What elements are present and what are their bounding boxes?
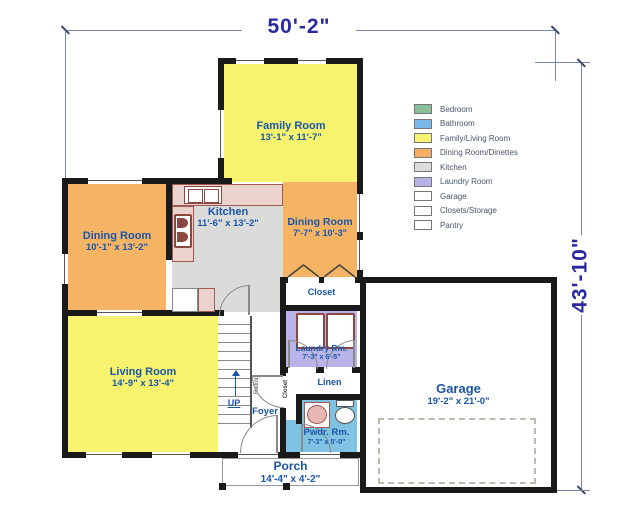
room-label-dining-left: Dining Room 10'-1" x 13'-2" bbox=[68, 230, 166, 254]
right-dimension-line bbox=[581, 315, 582, 490]
window bbox=[236, 58, 264, 64]
window bbox=[218, 110, 224, 158]
legend: Bedroom Bathroom Family/Living Room Dini… bbox=[414, 104, 518, 230]
wall bbox=[360, 487, 557, 493]
legend-item: Garage bbox=[414, 191, 518, 201]
porch-name: Porch bbox=[222, 460, 359, 474]
legend-label-dining: Dining Room/Dinettes bbox=[440, 148, 518, 157]
living-room-name: Living Room bbox=[68, 366, 218, 379]
legend-swatch-closets bbox=[414, 206, 432, 216]
laundry-name: Laundry Rm. bbox=[286, 344, 357, 354]
top-dimension-label: 50'-2" bbox=[242, 15, 356, 39]
wall bbox=[280, 305, 363, 311]
family-room-dims: 13'-1" x 11'-7" bbox=[228, 133, 354, 144]
legend-label-laundry: Laundry Room bbox=[440, 177, 492, 186]
legend-item: Laundry Room bbox=[414, 177, 518, 187]
toilet-bowl bbox=[335, 407, 355, 424]
legend-label-closets: Closets/Storage bbox=[440, 206, 497, 215]
legend-item: Bedroom bbox=[414, 104, 518, 114]
legend-label-kitchen: Kitchen bbox=[440, 163, 467, 172]
dining-left-name: Dining Room bbox=[68, 230, 166, 243]
legend-swatch-pantry bbox=[414, 220, 432, 230]
room-label-family: Family Room 13'-1" x 11'-7" bbox=[228, 120, 354, 144]
bifold-door bbox=[324, 264, 355, 278]
room-label-dining-right: Dining Room 7'-7" x 10'-3" bbox=[283, 216, 357, 238]
kitchen-door-leaf bbox=[248, 285, 250, 315]
wall bbox=[551, 277, 557, 493]
kitchen-dims: 11'-6" x 13'-2" bbox=[178, 219, 278, 230]
porch-dims: 14'-4" x 4'-2" bbox=[222, 474, 359, 486]
legend-label-garage: Garage bbox=[440, 192, 467, 201]
laundry-dims: 7'-3" x 6'-5" bbox=[286, 354, 357, 362]
garage-dims: 19'-2" x 21'-0" bbox=[366, 397, 551, 408]
room-label-porch: Porch 14'-4" x 4'-2" bbox=[222, 460, 359, 485]
dining-right-dims: 7'-7" x 10'-3" bbox=[283, 228, 357, 238]
room-label-laundry: Laundry Rm. 7'-3" x 6'-5" bbox=[286, 344, 357, 362]
sink-basin bbox=[188, 189, 203, 203]
legend-label-bathroom: Bathroom bbox=[440, 119, 475, 128]
window bbox=[357, 240, 363, 270]
legend-label-family-living: Family/Living Room bbox=[440, 134, 510, 143]
right-dimension-label: 43'-10" bbox=[569, 233, 595, 318]
foyer-closet-label: Closet bbox=[283, 369, 289, 409]
legend-swatch-laundry bbox=[414, 177, 432, 187]
extension-line bbox=[556, 490, 590, 491]
room-label-garage: Garage 19'-2" x 21'-0" bbox=[366, 382, 551, 408]
kitchen-cabinet bbox=[198, 288, 215, 312]
legend-swatch-family-living bbox=[414, 133, 432, 143]
window bbox=[298, 58, 326, 64]
foyer-closet-door-arc bbox=[252, 376, 284, 408]
room-label-kitchen: Kitchen 11'-6" x 13'-2" bbox=[178, 206, 278, 230]
living-room-dims: 14'-9" x 13'-4" bbox=[68, 379, 218, 390]
sink-basin bbox=[204, 189, 219, 203]
cased-opening bbox=[97, 310, 142, 316]
wall bbox=[360, 277, 557, 283]
legend-item: Pantry bbox=[414, 220, 518, 230]
right-dimension-line bbox=[581, 63, 582, 235]
legend-item: Dining Room/Dinettes bbox=[414, 148, 518, 158]
legend-swatch-bathroom bbox=[414, 119, 432, 129]
up-arrow-head bbox=[232, 370, 240, 376]
toilet-tank bbox=[336, 400, 354, 407]
legend-item: Bathroom bbox=[414, 119, 518, 129]
family-room-name: Family Room bbox=[228, 120, 354, 133]
room-label-living: Living Room 14'-9" x 13'-4" bbox=[68, 366, 218, 390]
window bbox=[86, 452, 122, 458]
powder-name: Pwdr. Rm. bbox=[296, 428, 357, 439]
legend-item: Kitchen bbox=[414, 162, 518, 172]
top-dimension-line bbox=[356, 30, 555, 31]
legend-swatch-dining bbox=[414, 148, 432, 158]
linen-label: Linen bbox=[302, 377, 357, 387]
legend-item: Closets/Storage bbox=[414, 206, 518, 216]
legend-label-pantry: Pantry bbox=[440, 221, 463, 230]
front-door-leaf bbox=[276, 415, 278, 453]
extension-line bbox=[65, 31, 66, 178]
legend-swatch-bedroom bbox=[414, 104, 432, 114]
kitchen-name: Kitchen bbox=[178, 206, 278, 219]
legend-label-bedroom: Bedroom bbox=[440, 105, 472, 114]
floor-plan: 50'-2" 43'-10" bbox=[0, 0, 640, 517]
bifold-door bbox=[288, 264, 319, 278]
dining-left-dims: 10'-1" x 13'-2" bbox=[68, 243, 166, 254]
room-label-powder: Pwdr. Rm. 7'-3" x 5'-0" bbox=[296, 428, 357, 447]
up-arrow bbox=[235, 374, 236, 396]
window bbox=[152, 452, 190, 458]
extension-line bbox=[555, 31, 556, 81]
garage-name: Garage bbox=[366, 382, 551, 397]
wall bbox=[62, 178, 68, 458]
closet-label: Closet bbox=[286, 287, 357, 297]
foyer-closet-door-leaf bbox=[252, 375, 283, 377]
window bbox=[62, 254, 68, 284]
window bbox=[357, 194, 363, 232]
wall bbox=[296, 394, 302, 424]
sink-bowl bbox=[307, 405, 327, 424]
legend-item: Family/Living Room bbox=[414, 133, 518, 143]
kitchen-cabinet bbox=[172, 288, 198, 312]
top-dimension-line bbox=[65, 30, 242, 31]
legend-swatch-kitchen bbox=[414, 162, 432, 172]
powder-dims: 7'-3" x 5'-0" bbox=[296, 439, 357, 447]
dining-right-name: Dining Room bbox=[283, 216, 357, 228]
garage-parking-outline bbox=[378, 418, 536, 484]
legend-swatch-garage bbox=[414, 191, 432, 201]
window bbox=[88, 178, 142, 184]
stove-burner bbox=[177, 232, 188, 242]
